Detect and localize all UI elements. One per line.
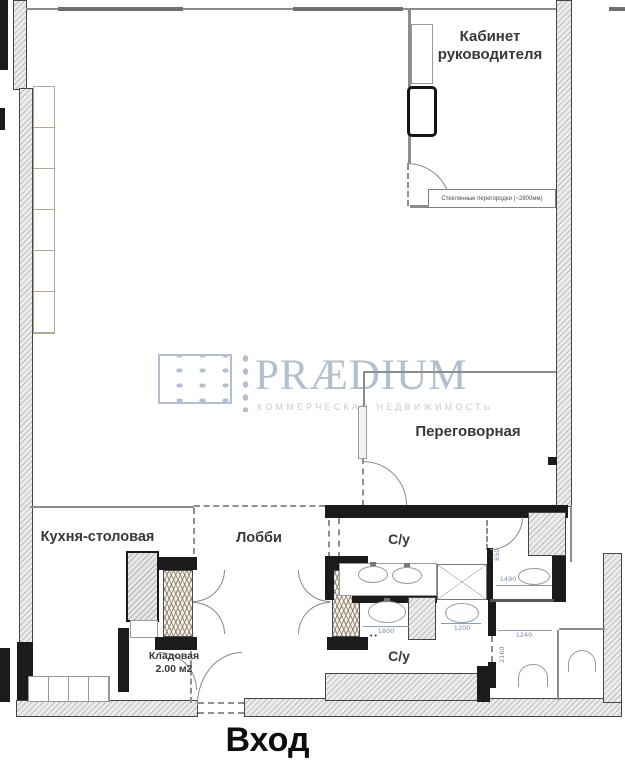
wall-hatched (13, 0, 27, 90)
toilet-arch (568, 650, 596, 672)
glass-partition-dashed (194, 505, 325, 507)
entrance-dashed-line (198, 702, 244, 704)
dimension-label: 1240 (506, 632, 542, 640)
dimension-label: 1200 (444, 625, 480, 633)
wall-segment (0, 648, 10, 702)
office-label-line2: руководителя (438, 46, 542, 63)
wall-line (363, 371, 556, 373)
wall-segment (325, 556, 334, 600)
wall-hatched (556, 0, 572, 507)
door-dashed (486, 520, 488, 550)
watermark-tagline: КОММЕРЧЕСКАЯ НЕДВИЖИМОСТЬ (257, 402, 485, 414)
wall-hatched (19, 88, 33, 645)
room-label-storage: Кладовая 2.00 м2 (138, 650, 210, 676)
toilet (368, 601, 406, 623)
tap-icon (404, 563, 410, 567)
door-dashed (491, 636, 493, 662)
praedium-logo-icon (158, 354, 232, 404)
room-label-wc-upper: С/у (384, 531, 414, 548)
duct-shaft (437, 564, 487, 600)
wall-segment (477, 666, 490, 702)
door-arc (193, 602, 225, 634)
wall-segment (552, 556, 566, 602)
cabinet-column (33, 86, 55, 334)
wall-hatched (528, 512, 566, 556)
wall-segment (0, 108, 5, 130)
wall-line (570, 505, 572, 562)
dimension-label: 2160 (499, 640, 508, 670)
wall-line (490, 599, 554, 602)
door-dashed (328, 520, 330, 558)
wall-segment (0, 0, 8, 70)
sink-counter (339, 563, 437, 596)
door-leaf (163, 570, 193, 637)
wall-hatched (16, 700, 198, 717)
glass-partition-dashed (338, 518, 340, 558)
dimension-label: 850 (494, 546, 503, 564)
storage-label-line2: 2.00 м2 (156, 663, 193, 675)
dimension-label: 1490 (498, 576, 518, 583)
glass-partition-note: Стеклянные перегородки (~2800мм) (428, 189, 556, 208)
glass-partition-dashed (193, 508, 195, 554)
wall-segment (118, 628, 129, 692)
floor-plan: PRÆDIUM КОММЕРЧЕСКАЯ НЕДВИЖИМОСТЬ Кабине… (0, 0, 625, 768)
wall-hatched (325, 673, 480, 701)
wall-hatched (408, 597, 436, 640)
room-label-wc-lower: С/у (384, 648, 414, 665)
watermark: PRÆDIUM КОММЕРЧЕСКАЯ НЕДВИЖИМОСТЬ (158, 346, 488, 418)
entrance-dashed-line (198, 712, 244, 714)
hinge-dots-icon: •• (370, 633, 386, 641)
toilet (445, 603, 479, 623)
sink-oval (358, 566, 388, 583)
office-label-line1: Кабинет (460, 28, 521, 45)
office-cabinet (407, 86, 437, 137)
wall-segment (548, 457, 557, 465)
cabinet (130, 620, 158, 638)
dimension-line (496, 585, 552, 586)
room-label-meeting: Переговорная (412, 423, 524, 439)
wall-line (58, 7, 183, 11)
glass-panel (358, 406, 367, 459)
wall-segment (157, 557, 197, 570)
cistern-icon (384, 598, 390, 602)
wall-hatched (603, 553, 622, 703)
door-arc (363, 461, 407, 505)
tap-icon (370, 562, 376, 566)
door-arc (298, 602, 330, 634)
wall-line (559, 628, 605, 630)
wall-line (609, 7, 625, 11)
toilet-arch (518, 664, 548, 687)
toilet (518, 568, 550, 585)
kitchen-counter (28, 676, 110, 702)
entrance-label: Вход (200, 720, 335, 764)
room-label-office: Кабинет руководителя (425, 28, 555, 66)
wall-segment (488, 600, 496, 636)
room-label-kitchen: Кухня-столовая (40, 529, 155, 545)
wall-segment (155, 637, 197, 650)
storage-label-line1: Кладовая (149, 650, 199, 662)
door-arc (193, 570, 225, 602)
wall-line (363, 373, 365, 407)
wall-segment (327, 637, 368, 650)
logo-dot-column-icon (240, 350, 251, 412)
sink-oval (392, 567, 422, 584)
room-label-lobby: Лобби (233, 530, 285, 546)
wall-line (557, 630, 559, 700)
wall-line (293, 7, 403, 11)
wall-line (30, 506, 194, 508)
watermark-brand: PRÆDIUM (255, 354, 485, 400)
wardrobe-hatched (126, 551, 159, 622)
